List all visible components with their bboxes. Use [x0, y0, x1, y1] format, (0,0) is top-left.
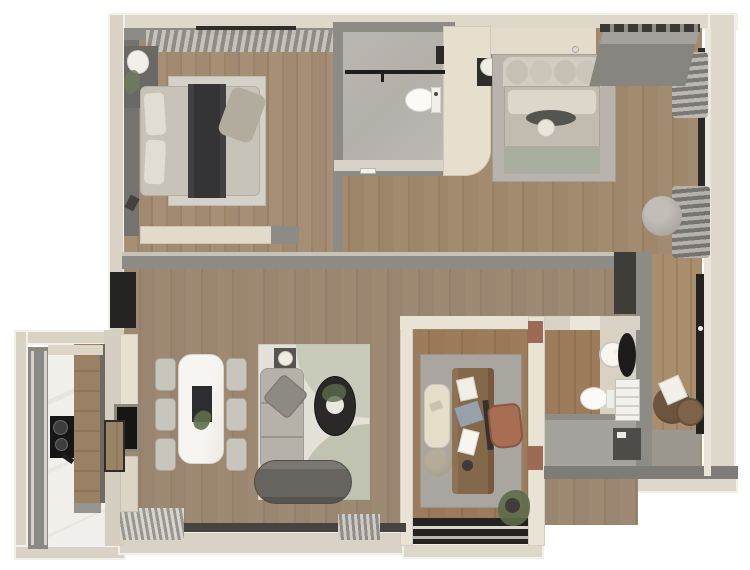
bedroom2-headboard-scallop-b: [530, 60, 552, 84]
bedroom2-pouf: [642, 196, 682, 236]
toilet-button-bathroom1: [434, 92, 438, 96]
hall-wardrobe: [443, 26, 491, 176]
bathroom2-top-wall-b: [600, 316, 640, 330]
kitchen-burner-b: [55, 438, 68, 451]
dining-chair-left-1: [155, 358, 176, 391]
door-panel-upper: [528, 321, 543, 343]
kitchen-counter-cap: [74, 503, 101, 513]
shower-head: [436, 46, 444, 64]
kitchen-left-wall: [14, 330, 28, 560]
bedroom1-curtain: [146, 30, 334, 52]
dining-chair-right-3: [226, 438, 247, 471]
balcony-window-trim: [704, 258, 711, 476]
kitchen-cabinet-gap-b: [44, 351, 47, 545]
bathroom1-door-handle: [360, 168, 376, 174]
study-top-wall: [400, 316, 532, 329]
bathroom2-top-wall-a: [544, 316, 570, 330]
bedroom1-dresser-side: [271, 226, 299, 244]
study-pouf: [424, 448, 452, 476]
bathroom2-cabinet-item: [617, 432, 626, 438]
door-panel-lower: [528, 446, 543, 470]
hallway-floor: [334, 164, 458, 256]
floor-plan-scene: [0, 0, 750, 570]
main-dividing-wall: [122, 252, 614, 269]
bathroom1-bottom-wall-lip: [334, 171, 456, 176]
study-plant-pot: [505, 498, 520, 513]
dining-chair-left-3: [155, 438, 176, 471]
sofa-dark-section: [254, 460, 352, 504]
bathroom2-faucet: [613, 349, 618, 354]
living-curtain-right: [338, 514, 380, 540]
bedroom2-top-window: [600, 24, 700, 32]
bedroom2-blanket: [504, 146, 600, 174]
bedroom2-dresser: [589, 32, 698, 86]
balcony-floor-mat: [652, 430, 700, 468]
study-window-mullion-a: [413, 526, 528, 529]
bathroom2-basin: [618, 333, 636, 377]
study-chair: [487, 402, 524, 449]
balcony-chair: [676, 398, 704, 426]
bedroom1-bed-runner: [188, 84, 226, 198]
dining-chair-right-2: [226, 398, 247, 431]
study-bottom-wall: [402, 543, 544, 559]
bathroom2-door-threshold: [570, 316, 600, 330]
dining-chair-right-1: [226, 358, 247, 391]
toilet-tank-bathroom1: [431, 87, 441, 113]
bedroom1-pillow-b: [144, 140, 166, 185]
study-bench: [424, 384, 450, 448]
dining-wall-cabinet: [120, 334, 138, 406]
sofa-side-table-bowl: [278, 351, 293, 366]
study-window-mullion-b: [413, 536, 528, 539]
bedroom2-pendant: [572, 46, 579, 53]
kitchen-top-wall: [15, 330, 115, 345]
kitchen-cabinet-gap-a: [31, 351, 34, 545]
study-right-wall: [528, 316, 545, 546]
bathroom2-toilet-tank: [606, 389, 615, 409]
sofa-chaise-seam-b: [260, 436, 304, 438]
living-curtain-left: [120, 508, 184, 540]
tall-cabinet-fridge: [110, 272, 136, 328]
kitchen-burner-a: [53, 420, 68, 435]
kitchen-counter-wood: [74, 344, 101, 510]
bathroom2-toilet-bowl: [580, 387, 608, 410]
bedroom2-headboard-scallop-a: [506, 60, 528, 84]
study-left-wall: [400, 316, 413, 546]
right-wall: [708, 13, 736, 491]
bedroom1-pillow-a: [144, 92, 167, 135]
doorway-shadow: [614, 252, 636, 314]
bathroom2-shelf-rack: [615, 379, 640, 421]
bedroom1-dresser: [140, 226, 272, 244]
bathroom1-top-wall-inner: [343, 22, 455, 32]
study-cup: [462, 460, 473, 471]
dining-chair-left-2: [155, 398, 176, 431]
kitchen-living-door-frame: [104, 420, 125, 472]
bedroom2-ball-pillow: [537, 119, 555, 137]
balcony-window-handle: [698, 326, 703, 331]
shower-glass-divider: [381, 70, 384, 82]
bedroom2-headboard-scallop-c: [554, 60, 576, 84]
kitchen-top-cabinet: [48, 345, 103, 355]
bedroom1-bathroom1-wall: [333, 22, 343, 256]
shower-glass-panel: [345, 70, 445, 74]
